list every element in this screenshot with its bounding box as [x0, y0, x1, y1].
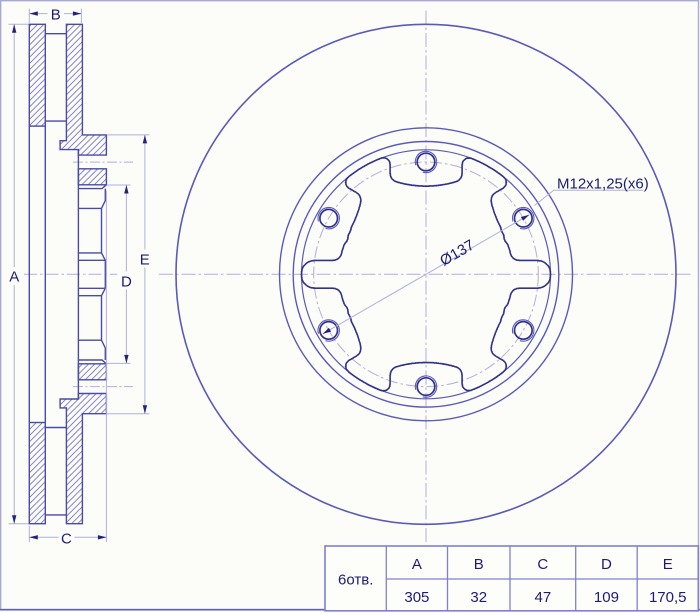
svg-text:305: 305 — [404, 589, 429, 606]
svg-text:C: C — [537, 556, 548, 573]
svg-text:E: E — [140, 251, 150, 268]
svg-text:C: C — [61, 531, 72, 548]
svg-text:47: 47 — [535, 589, 552, 606]
svg-text:D: D — [601, 556, 612, 573]
svg-text:E: E — [663, 556, 673, 573]
svg-text:6отв.: 6отв. — [338, 572, 373, 589]
svg-text:A: A — [412, 556, 422, 573]
svg-text:109: 109 — [594, 589, 619, 606]
svg-text:B: B — [51, 7, 61, 24]
svg-text:B: B — [474, 556, 484, 573]
svg-text:32: 32 — [470, 589, 487, 606]
svg-text:A: A — [9, 269, 19, 286]
svg-text:170,5: 170,5 — [649, 589, 687, 606]
svg-text:D: D — [121, 273, 132, 290]
svg-text:M12x1,25(x6): M12x1,25(x6) — [557, 176, 649, 193]
